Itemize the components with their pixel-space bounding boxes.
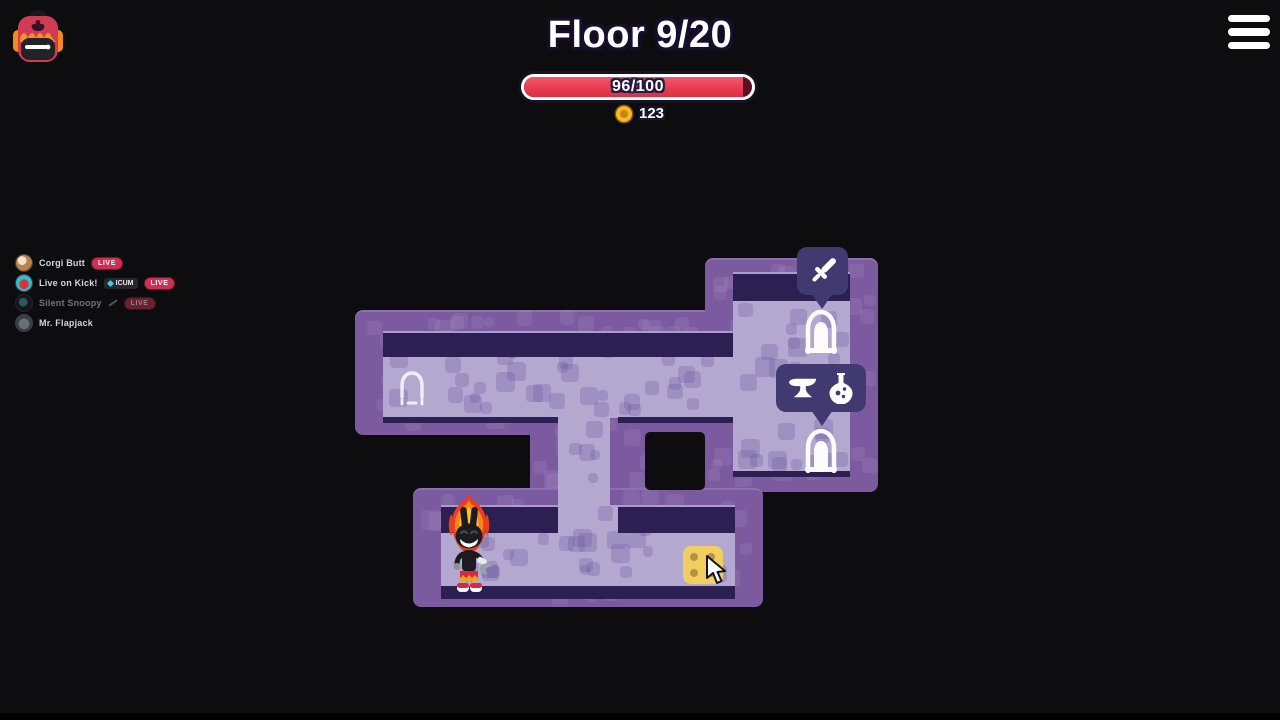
door-bottom-right-icon[interactable] — [802, 427, 840, 478]
avatar — [15, 294, 33, 312]
hp-text: 96/100 — [521, 74, 755, 100]
potion-icon — [827, 372, 855, 404]
tile-texture — [445, 357, 460, 372]
tile-texture — [849, 263, 864, 278]
tooltip-arrow — [811, 293, 833, 309]
streamer-name: Corgi Butt — [39, 258, 85, 268]
player-character — [438, 494, 500, 601]
floor-edge — [618, 417, 733, 423]
door-left-dim-icon[interactable] — [397, 369, 427, 412]
tile-texture — [448, 387, 463, 402]
weapon-room-tooltip[interactable] — [797, 247, 848, 295]
floor-corridor[interactable] — [558, 418, 610, 506]
tile-texture — [455, 373, 468, 386]
tile-texture — [480, 402, 492, 414]
tile-texture — [740, 374, 757, 391]
tile-texture — [628, 404, 640, 416]
game-screen: Floor 9/20 96/100 123 Corgi Butt — [0, 0, 1280, 720]
streamer-row[interactable]: Mr. Flapjack — [15, 313, 175, 333]
menu-bar — [1228, 42, 1270, 50]
tile-texture — [786, 323, 797, 334]
tile-texture — [598, 506, 614, 522]
tile-texture — [474, 382, 486, 394]
tooltip-arrow — [811, 410, 833, 426]
tile-texture — [791, 459, 802, 470]
gem-icon — [107, 279, 114, 286]
tile-texture — [851, 447, 865, 461]
live-badge: LIVE — [144, 277, 176, 290]
tile-texture — [598, 390, 609, 401]
tile-texture — [738, 303, 753, 318]
tile-texture — [761, 344, 778, 361]
tile-texture — [573, 529, 592, 548]
tile-texture — [864, 295, 876, 307]
tile-texture — [860, 309, 874, 323]
streamer-row[interactable]: Silent Snoopy LIVE — [15, 293, 175, 313]
cheese-hole — [690, 569, 698, 577]
sword-icon — [805, 253, 841, 289]
tile-texture — [484, 317, 494, 327]
streamer-row[interactable]: Corgi Butt LIVE — [15, 253, 175, 273]
wall-shadow — [383, 331, 733, 357]
tile-texture — [629, 472, 645, 488]
tile-texture — [862, 458, 877, 473]
coin-counter: 123 — [0, 105, 1280, 122]
tile-texture — [557, 362, 568, 373]
tile-texture — [578, 316, 595, 333]
inventory-backpack-button[interactable] — [12, 8, 64, 66]
tile-texture — [643, 546, 654, 557]
backpack-icon — [12, 8, 64, 66]
cheese-hole — [690, 553, 698, 561]
coin-icon — [616, 106, 632, 122]
streamer-name: Mr. Flapjack — [39, 318, 93, 328]
floor-edge — [383, 417, 558, 423]
tile-texture — [450, 316, 464, 330]
menu-bar — [1228, 28, 1270, 36]
tile-texture — [711, 459, 721, 469]
tile-texture — [669, 377, 682, 390]
coin-count: 123 — [639, 105, 664, 122]
tile-texture — [569, 443, 581, 455]
letterbox-bar — [0, 713, 1280, 720]
door-top-right-icon[interactable] — [802, 308, 840, 359]
floor-title: Floor 9/20 — [0, 14, 1280, 57]
tile-texture — [560, 310, 575, 325]
tile-texture — [645, 381, 659, 395]
mouse-cursor — [704, 555, 730, 590]
tile-texture — [687, 398, 699, 410]
icum-badge: ICUM — [104, 278, 138, 289]
wall-shadow — [618, 505, 735, 533]
streamer-row[interactable]: Live on Kick! ICUM LIVE — [15, 273, 175, 293]
menu-bar — [1228, 15, 1270, 23]
hamburger-menu-button[interactable] — [1228, 10, 1274, 54]
tile-texture — [580, 387, 598, 405]
map-hole — [645, 432, 705, 490]
tile-texture — [538, 533, 550, 545]
tile-texture — [549, 393, 565, 409]
tile-texture — [620, 566, 632, 578]
tile-texture — [533, 384, 551, 402]
live-badge: LIVE — [91, 257, 123, 270]
tile-texture — [740, 543, 752, 555]
tile-texture — [533, 461, 547, 475]
streamer-list: Corgi Butt LIVE Live on Kick! ICUM LIVE … — [15, 253, 175, 333]
tile-texture — [588, 473, 598, 483]
pencil-icon — [108, 299, 117, 306]
tile-texture — [580, 565, 590, 575]
tile-texture — [507, 362, 526, 381]
streamer-name: Live on Kick! — [39, 278, 98, 288]
tile-texture — [624, 429, 641, 446]
tile-texture — [510, 549, 527, 566]
avatar — [15, 314, 33, 332]
avatar — [15, 254, 33, 272]
anvil-icon — [787, 375, 819, 401]
tile-texture — [517, 310, 533, 326]
avatar — [15, 274, 33, 292]
live-badge: LIVE — [124, 297, 156, 310]
tile-texture — [768, 451, 787, 470]
tile-texture — [586, 421, 603, 438]
tile-texture — [750, 454, 763, 467]
tile-texture — [708, 469, 720, 481]
streamer-name: Silent Snoopy — [39, 298, 102, 308]
shop-room-tooltip[interactable] — [776, 364, 866, 412]
tile-texture — [367, 321, 382, 336]
tile-texture — [471, 316, 484, 329]
tile-texture — [611, 544, 630, 563]
tile-texture — [778, 423, 795, 440]
